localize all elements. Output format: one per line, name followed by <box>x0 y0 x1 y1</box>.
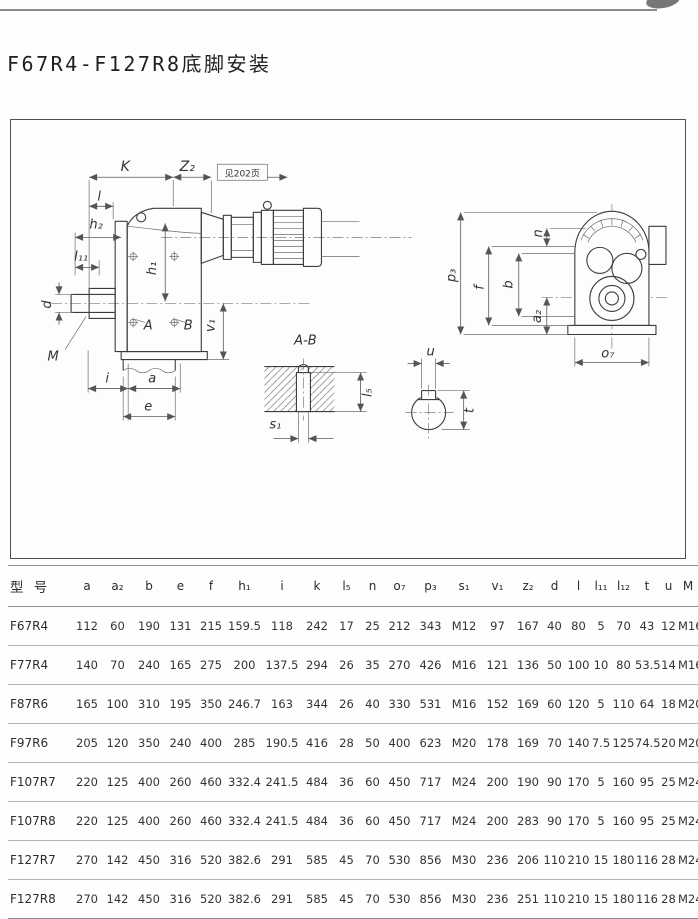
value-cell: 220 <box>72 775 102 789</box>
value-cell: 520 <box>196 892 226 906</box>
value-cell: 236 <box>481 853 514 867</box>
value-cell: 80 <box>567 619 590 633</box>
value-cell: 241.5 <box>263 775 301 789</box>
value-cell: 131 <box>165 619 196 633</box>
value-cell: 210 <box>567 853 590 867</box>
value-cell: 220 <box>72 814 102 828</box>
value-cell: 95 <box>635 814 659 828</box>
value-cell: 212 <box>385 619 414 633</box>
value-cell: 5 <box>590 814 612 828</box>
value-cell: 530 <box>385 892 414 906</box>
value-cell: 26 <box>333 697 360 711</box>
table-body: F67R411260190131215159.51182421725212343… <box>8 607 698 919</box>
value-cell: 116 <box>635 892 659 906</box>
value-cell: 206 <box>514 853 542 867</box>
value-cell: 460 <box>196 775 226 789</box>
column-header: v₁ <box>481 579 514 593</box>
value-cell: M30 <box>447 892 481 906</box>
value-cell: 343 <box>414 619 447 633</box>
value-cell: 26 <box>333 658 360 672</box>
value-cell: 260 <box>165 814 196 828</box>
top-rule <box>0 9 657 11</box>
column-header: o₇ <box>385 579 414 593</box>
value-cell: 180 <box>612 853 635 867</box>
dim-label-A: A <box>143 318 153 333</box>
value-cell: 585 <box>301 892 333 906</box>
dim-label-l11: l₁₁ <box>74 249 88 264</box>
value-cell: 116 <box>635 853 659 867</box>
value-cell: 36 <box>333 814 360 828</box>
value-cell: 291 <box>263 892 301 906</box>
value-cell: 35 <box>360 658 385 672</box>
value-cell: 169 <box>514 697 542 711</box>
catalog-page: F67R4-F127R8底脚安装 <box>0 0 698 919</box>
column-header: a <box>72 579 102 593</box>
value-cell: 400 <box>385 736 414 750</box>
dim-label-i: i <box>105 372 109 387</box>
column-header: e <box>165 579 196 593</box>
value-cell: 200 <box>226 658 263 672</box>
value-cell: 291 <box>263 853 301 867</box>
value-cell: 5 <box>590 775 612 789</box>
column-header: b <box>133 579 165 593</box>
value-cell: M16 <box>678 619 698 633</box>
value-cell: 275 <box>196 658 226 672</box>
column-header: l₅ <box>333 579 360 593</box>
model-cell: F127R8 <box>8 892 72 906</box>
value-cell: 332.4 <box>226 775 263 789</box>
value-cell: 195 <box>165 697 196 711</box>
value-cell: 484 <box>301 775 333 789</box>
value-cell: 190.5 <box>263 736 301 750</box>
page-title: F67R4-F127R8底脚安装 <box>7 48 272 77</box>
value-cell: 125 <box>102 814 133 828</box>
value-cell: 120 <box>567 697 590 711</box>
value-cell: 90 <box>542 775 567 789</box>
table-row: F97R6205120350240400285190.5416285040062… <box>8 724 698 763</box>
value-cell: 7.5 <box>590 736 612 750</box>
column-header: s₁ <box>447 579 481 593</box>
value-cell: 160 <box>612 775 635 789</box>
value-cell: 40 <box>542 619 567 633</box>
value-cell: 416 <box>301 736 333 750</box>
value-cell: 40 <box>360 697 385 711</box>
value-cell: 25 <box>360 619 385 633</box>
value-cell: 136 <box>514 658 542 672</box>
value-cell: 240 <box>133 658 165 672</box>
value-cell: 856 <box>414 853 447 867</box>
value-cell: 125 <box>102 775 133 789</box>
dim-label-d: d <box>40 300 55 309</box>
value-cell: 530 <box>385 853 414 867</box>
value-cell: 251 <box>514 892 542 906</box>
table-row: F127R7270142450316520382.629158545705308… <box>8 841 698 880</box>
value-cell: M20 <box>678 697 698 711</box>
value-cell: 426 <box>414 658 447 672</box>
value-cell: 70 <box>360 892 385 906</box>
dim-label-M: M <box>47 350 58 365</box>
model-cell: F67R4 <box>8 619 72 633</box>
value-cell: M20 <box>678 736 698 750</box>
value-cell: 28 <box>659 892 678 906</box>
value-cell: 36 <box>333 775 360 789</box>
value-cell: 53.5 <box>635 658 659 672</box>
dim-label-h2: h₂ <box>89 217 102 232</box>
value-cell: 110 <box>612 697 635 711</box>
value-cell: 74.5 <box>635 736 659 750</box>
value-cell: 142 <box>102 892 133 906</box>
section-title: A-B <box>293 334 317 349</box>
value-cell: 60 <box>102 619 133 633</box>
value-cell: 270 <box>385 658 414 672</box>
table-row: F67R411260190131215159.51182421725212343… <box>8 607 698 646</box>
value-cell: 400 <box>196 736 226 750</box>
value-cell: 460 <box>196 814 226 828</box>
value-cell: 400 <box>133 775 165 789</box>
value-cell: 344 <box>301 697 333 711</box>
column-header: d <box>542 579 567 593</box>
value-cell: 285 <box>226 736 263 750</box>
dim-label-e: e <box>144 400 152 415</box>
value-cell: 180 <box>612 892 635 906</box>
table-row: F127R8270142450316520382.629158545705308… <box>8 880 698 919</box>
dim-label-v1: v₁ <box>203 319 218 332</box>
value-cell: 350 <box>196 697 226 711</box>
value-cell: M24 <box>678 775 698 789</box>
dim-label-a2: a₂ <box>530 310 545 323</box>
column-header: z₂ <box>514 579 542 593</box>
model-cell: F77R4 <box>8 658 72 672</box>
column-header: u <box>659 579 678 593</box>
table-row: F77R414070240165275200137.52942635270426… <box>8 646 698 685</box>
dim-label-z2: Z₂ <box>179 159 196 175</box>
value-cell: M12 <box>447 619 481 633</box>
dim-label-u: u <box>426 345 434 360</box>
value-cell: 178 <box>481 736 514 750</box>
value-cell: 241.5 <box>263 814 301 828</box>
dimension-table: 型 号aa₂befh₁ikl₅no₇p₃s₁v₁z₂dll₁₁l₁₂tuM F6… <box>8 565 698 919</box>
dim-label-b: b <box>502 280 517 288</box>
value-cell: 110 <box>542 853 567 867</box>
column-header: t <box>635 579 659 593</box>
value-cell: 100 <box>102 697 133 711</box>
value-cell: 70 <box>542 736 567 750</box>
value-cell: 240 <box>165 736 196 750</box>
value-cell: M30 <box>447 853 481 867</box>
value-cell: 20 <box>659 736 678 750</box>
value-cell: 15 <box>590 853 612 867</box>
section-ab-detail: A-B l₅ s₁ <box>264 334 375 443</box>
keyway-detail: u t <box>406 345 478 439</box>
value-cell: 169 <box>514 736 542 750</box>
value-cell: 623 <box>414 736 447 750</box>
value-cell: 140 <box>72 658 102 672</box>
value-cell: 45 <box>333 853 360 867</box>
value-cell: M16 <box>447 697 481 711</box>
value-cell: 50 <box>542 658 567 672</box>
value-cell: 270 <box>72 892 102 906</box>
value-cell: 140 <box>567 736 590 750</box>
model-cell: F97R6 <box>8 736 72 750</box>
value-cell: 100 <box>567 658 590 672</box>
value-cell: 210 <box>567 892 590 906</box>
value-cell: 382.6 <box>226 892 263 906</box>
value-cell: 60 <box>360 775 385 789</box>
dim-label-h1: h₁ <box>145 262 160 275</box>
column-header: a₂ <box>102 579 133 593</box>
column-header: f <box>196 579 226 593</box>
value-cell: 200 <box>481 775 514 789</box>
technical-drawing: K Z₂ 见202页 l h₂ l₁₁ d M h₁ A B v₁ i a e … <box>10 119 686 559</box>
value-cell: M24 <box>447 775 481 789</box>
value-cell: 14 <box>659 658 678 672</box>
value-cell: 112 <box>72 619 102 633</box>
value-cell: 332.4 <box>226 814 263 828</box>
value-cell: 260 <box>165 775 196 789</box>
value-cell: 170 <box>567 814 590 828</box>
value-cell: 165 <box>165 658 196 672</box>
value-cell: 205 <box>72 736 102 750</box>
value-cell: 246.7 <box>226 697 263 711</box>
column-header: M <box>678 579 698 593</box>
column-header: n <box>360 579 385 593</box>
column-header: l <box>567 579 590 593</box>
dim-label-l: l <box>97 189 101 204</box>
column-header: p₃ <box>414 579 447 593</box>
column-header: k <box>301 579 333 593</box>
value-cell: 200 <box>481 814 514 828</box>
table-row: F107R7220125400260460332.4241.5484366045… <box>8 763 698 802</box>
value-cell: 70 <box>612 619 635 633</box>
value-cell: 450 <box>133 892 165 906</box>
value-cell: 70 <box>360 853 385 867</box>
value-cell: 125 <box>612 736 635 750</box>
value-cell: 400 <box>133 814 165 828</box>
value-cell: 60 <box>360 814 385 828</box>
value-cell: 160 <box>612 814 635 828</box>
value-cell: 170 <box>567 775 590 789</box>
value-cell: 270 <box>72 853 102 867</box>
value-cell: 142 <box>102 853 133 867</box>
see-page-note: 见202页 <box>225 168 260 179</box>
front-view: p₃ f b n a₂ o₇ <box>445 204 668 366</box>
value-cell: 10 <box>590 658 612 672</box>
value-cell: 15 <box>590 892 612 906</box>
value-cell: 152 <box>481 697 514 711</box>
value-cell: M16 <box>447 658 481 672</box>
value-cell: 28 <box>333 736 360 750</box>
column-header: i <box>263 579 301 593</box>
dim-label-p3: p₃ <box>445 269 460 283</box>
value-cell: 316 <box>165 892 196 906</box>
value-cell: 283 <box>514 814 542 828</box>
value-cell: 167 <box>514 619 542 633</box>
dim-label-B: B <box>184 318 193 333</box>
value-cell: 856 <box>414 892 447 906</box>
value-cell: 18 <box>659 697 678 711</box>
value-cell: 382.6 <box>226 853 263 867</box>
table-row: F107R8220125400260460332.4241.5484366045… <box>8 802 698 841</box>
model-cell: F107R8 <box>8 814 72 828</box>
value-cell: 330 <box>385 697 414 711</box>
value-cell: 350 <box>133 736 165 750</box>
dim-label-s1: s₁ <box>269 418 281 433</box>
value-cell: 12 <box>659 619 678 633</box>
value-cell: 5 <box>590 697 612 711</box>
value-cell: 310 <box>133 697 165 711</box>
value-cell: 717 <box>414 775 447 789</box>
value-cell: 190 <box>514 775 542 789</box>
value-cell: 717 <box>414 814 447 828</box>
value-cell: M24 <box>678 892 698 906</box>
model-cell: F87R6 <box>8 697 72 711</box>
value-cell: 80 <box>612 658 635 672</box>
drawing-svg: K Z₂ 见202页 l h₂ l₁₁ d M h₁ A B v₁ i a e … <box>11 120 685 558</box>
value-cell: 70 <box>102 658 133 672</box>
value-cell: 450 <box>133 853 165 867</box>
value-cell: 585 <box>301 853 333 867</box>
value-cell: 17 <box>333 619 360 633</box>
value-cell: 215 <box>196 619 226 633</box>
value-cell: 450 <box>385 814 414 828</box>
value-cell: 25 <box>659 814 678 828</box>
value-cell: 121 <box>481 658 514 672</box>
dim-label-l5: l₅ <box>361 388 376 397</box>
value-cell: 110 <box>542 892 567 906</box>
table-header-row: 型 号aa₂befh₁ikl₅no₇p₃s₁v₁z₂dll₁₁l₁₂tuM <box>8 565 698 607</box>
dim-label-n: n <box>531 229 546 237</box>
value-cell: M20 <box>447 736 481 750</box>
value-cell: 50 <box>360 736 385 750</box>
value-cell: 118 <box>263 619 301 633</box>
value-cell: 316 <box>165 853 196 867</box>
dim-label-a: a <box>148 372 156 387</box>
side-view: K Z₂ 见202页 l h₂ l₁₁ d M h₁ A B v₁ i a e <box>40 159 412 420</box>
value-cell: 120 <box>102 736 133 750</box>
column-header: l₁₁ <box>590 579 612 593</box>
model-cell: F127R7 <box>8 853 72 867</box>
value-cell: 25 <box>659 775 678 789</box>
value-cell: 165 <box>72 697 102 711</box>
dim-label-K: K <box>121 159 132 175</box>
value-cell: 531 <box>414 697 447 711</box>
value-cell: 520 <box>196 853 226 867</box>
value-cell: 450 <box>385 775 414 789</box>
value-cell: 484 <box>301 814 333 828</box>
dim-label-t: t <box>463 407 478 413</box>
value-cell: 159.5 <box>226 619 263 633</box>
value-cell: 236 <box>481 892 514 906</box>
value-cell: 28 <box>659 853 678 867</box>
motor <box>201 201 359 266</box>
value-cell: M16 <box>678 658 698 672</box>
value-cell: 90 <box>542 814 567 828</box>
value-cell: 60 <box>542 697 567 711</box>
value-cell: M24 <box>678 814 698 828</box>
value-cell: 163 <box>263 697 301 711</box>
value-cell: 294 <box>301 658 333 672</box>
dim-label-f: f <box>473 283 488 290</box>
model-cell: F107R7 <box>8 775 72 789</box>
value-cell: 242 <box>301 619 333 633</box>
value-cell: 5 <box>590 619 612 633</box>
value-cell: M24 <box>678 853 698 867</box>
column-header: h₁ <box>226 579 263 593</box>
value-cell: 190 <box>133 619 165 633</box>
column-header: l₁₂ <box>612 579 635 593</box>
value-cell: 64 <box>635 697 659 711</box>
value-cell: M24 <box>447 814 481 828</box>
value-cell: 137.5 <box>263 658 301 672</box>
value-cell: 45 <box>333 892 360 906</box>
table-row: F87R6165100310195350246.7163344264033053… <box>8 685 698 724</box>
value-cell: 43 <box>635 619 659 633</box>
column-header: 型 号 <box>8 576 72 596</box>
value-cell: 97 <box>481 619 514 633</box>
value-cell: 95 <box>635 775 659 789</box>
dim-label-o7: o₇ <box>601 347 615 362</box>
